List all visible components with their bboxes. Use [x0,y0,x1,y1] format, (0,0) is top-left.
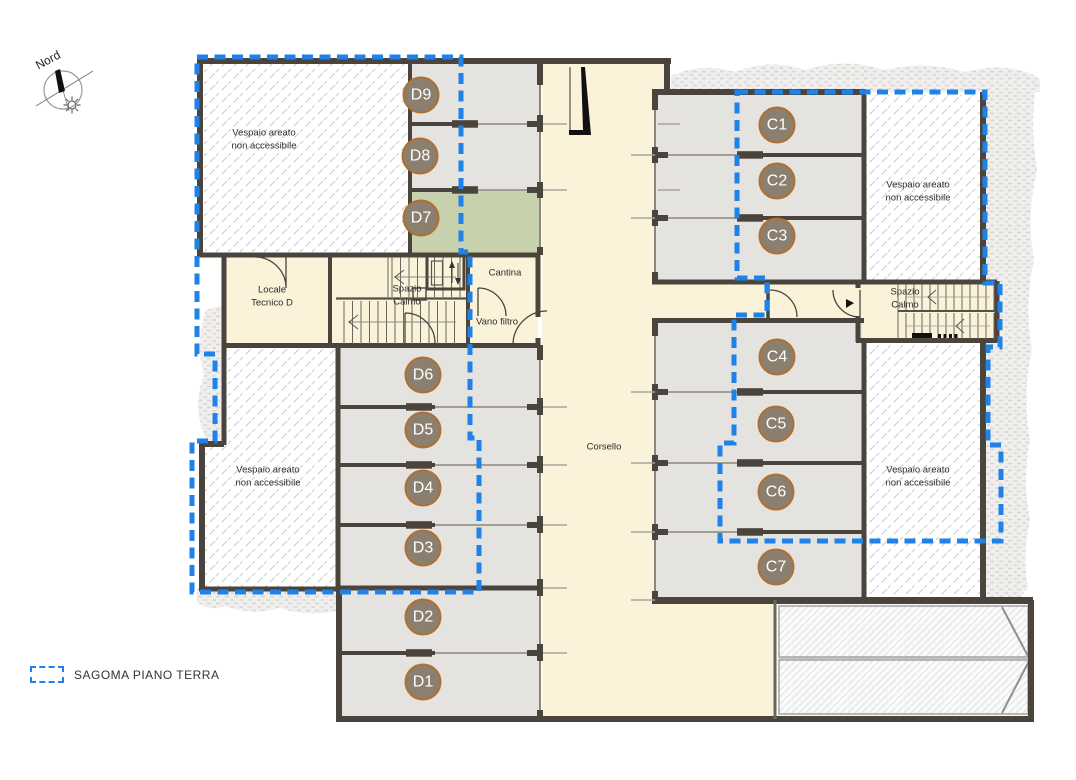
legend: SAGOMA PIANO TERRA [30,666,219,683]
ramp-lane-lower [779,660,1028,714]
ramp-lane-upper [779,606,1028,657]
legend-label: SAGOMA PIANO TERRA [74,668,219,682]
north-needle [55,69,65,93]
ramp-area [775,600,1031,719]
parking-badge-c1: C1 [759,107,796,144]
compass [36,69,93,114]
parking-badge-d5: D5 [405,412,442,449]
room-label-spazio-calmo-right: Spazio Calmo [890,286,919,313]
room-label-vano-filtro: Vano filtro [476,315,518,328]
parking-badge-c4: C4 [759,339,796,376]
sun-icon [64,97,81,114]
parking-badge-c2: C2 [759,163,796,200]
room-c3 [655,218,862,280]
room-label-cantina: Cantina [489,266,522,279]
room-label-vespaio-top-right: Vespaio areato non accessibile [886,179,951,206]
floor-plan: Nord Vespaio areato non accessibile Vesp… [0,0,1076,780]
parking-badge-d9: D9 [403,77,440,114]
parking-badge-c3: C3 [759,218,796,255]
room-label-locale-tecnico: Locale Tecnico D [251,284,293,311]
corridor-label: Corsello [587,440,622,453]
room-label-spazio-calmo-left: Spazio Calmo [392,283,421,310]
legend-dashed-swatch [30,666,64,683]
parking-badge-d8: D8 [402,138,439,175]
parking-badge-d2: D2 [405,599,442,636]
floor-plan-drawing [0,0,1076,780]
parking-badge-c5: C5 [758,406,795,443]
parking-badge-c6: C6 [758,474,795,511]
parking-badge-d3: D3 [405,530,442,567]
room-label-vespaio-bottom-left: Vespaio areato non accessibile [236,464,301,491]
parking-badge-d4: D4 [405,470,442,507]
room-label-vespaio-bottom-right: Vespaio areato non accessibile [886,464,951,491]
room-label-vespaio-top-left: Vespaio areato non accessibile [232,127,297,154]
parking-badge-d6: D6 [405,357,442,394]
parking-badge-d1: D1 [405,664,442,701]
parking-badge-d7: D7 [403,200,440,237]
parking-badge-c7: C7 [758,549,795,586]
